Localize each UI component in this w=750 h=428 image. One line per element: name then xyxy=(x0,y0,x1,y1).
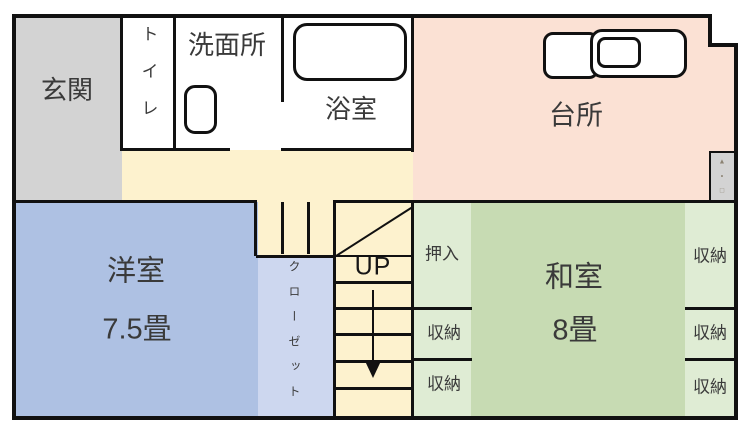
utility-glyph-dot: • xyxy=(721,174,723,181)
wall-outer-right xyxy=(734,43,738,420)
wall-bathroom-right xyxy=(411,16,414,152)
wall-oshiire-divider-1 xyxy=(414,307,472,310)
label-western-room-size: 7.5畳 xyxy=(102,316,171,345)
label-genkan: 玄関 xyxy=(41,77,93,103)
wall-toilet-right xyxy=(173,16,176,150)
door-jamb-2 xyxy=(281,202,284,254)
label-stairs-up: UP xyxy=(355,255,392,280)
wall-toprooms-bottom-left xyxy=(120,148,230,151)
label-kitchen: 台所 xyxy=(549,103,603,130)
label-storage-right-2: 収納 xyxy=(693,325,727,342)
wall-western-top xyxy=(12,200,257,203)
wall-storage-right-divider-2 xyxy=(685,358,738,361)
stair-step xyxy=(336,281,411,284)
label-japanese-room-size: 8畳 xyxy=(552,317,597,346)
label-bathroom: 浴室 xyxy=(325,96,377,122)
wall-outer-top xyxy=(12,14,712,18)
wall-outer-left xyxy=(12,14,16,420)
label-storage-right-3: 収納 xyxy=(693,379,727,396)
label-closet: クローゼット xyxy=(288,260,300,410)
room-western xyxy=(12,202,258,418)
wall-toprooms-bottom-right xyxy=(281,148,414,151)
room-japanese xyxy=(471,202,685,418)
wall-outer-bottom xyxy=(12,416,738,420)
utility-glyph-triangle: ▲ xyxy=(719,159,726,166)
floor-plan: ▲ • □ 玄関 トイレ 洗面所 浴室 台所 洋室 7.5畳 クローゼット UP… xyxy=(0,0,750,428)
door-jamb-1 xyxy=(254,200,257,256)
room-genkan xyxy=(12,14,122,202)
kitchen-sink xyxy=(597,37,641,68)
label-oshiire: 押入 xyxy=(425,246,459,263)
label-washroom: 洗面所 xyxy=(188,32,266,58)
label-storage-right-1: 収納 xyxy=(693,248,727,265)
wall-storage-right-divider-1 xyxy=(685,307,738,310)
utility-glyph-square: □ xyxy=(720,188,724,195)
hallway xyxy=(122,150,413,202)
door-jamb-3 xyxy=(307,202,310,254)
stair-arrow-down-icon xyxy=(365,361,381,378)
wall-oshiire-divider-2 xyxy=(414,358,472,361)
label-storage-left-1: 収納 xyxy=(427,325,461,342)
wall-closet-top xyxy=(256,255,335,258)
label-storage-left-2: 収納 xyxy=(427,376,461,393)
label-toilet: トイレ xyxy=(140,25,157,136)
wall-washroom-right xyxy=(281,16,284,102)
bathtub xyxy=(293,23,407,81)
stair-arrow-shaft xyxy=(372,290,374,362)
wall-kitchen-bottom xyxy=(333,200,738,203)
label-western-room: 洋室 xyxy=(107,258,165,287)
stair-step xyxy=(336,387,411,390)
washroom-sink xyxy=(184,85,217,134)
wall-stairs-left xyxy=(333,200,336,418)
label-japanese-room: 和室 xyxy=(545,264,603,293)
wall-genkan-right xyxy=(120,16,123,150)
